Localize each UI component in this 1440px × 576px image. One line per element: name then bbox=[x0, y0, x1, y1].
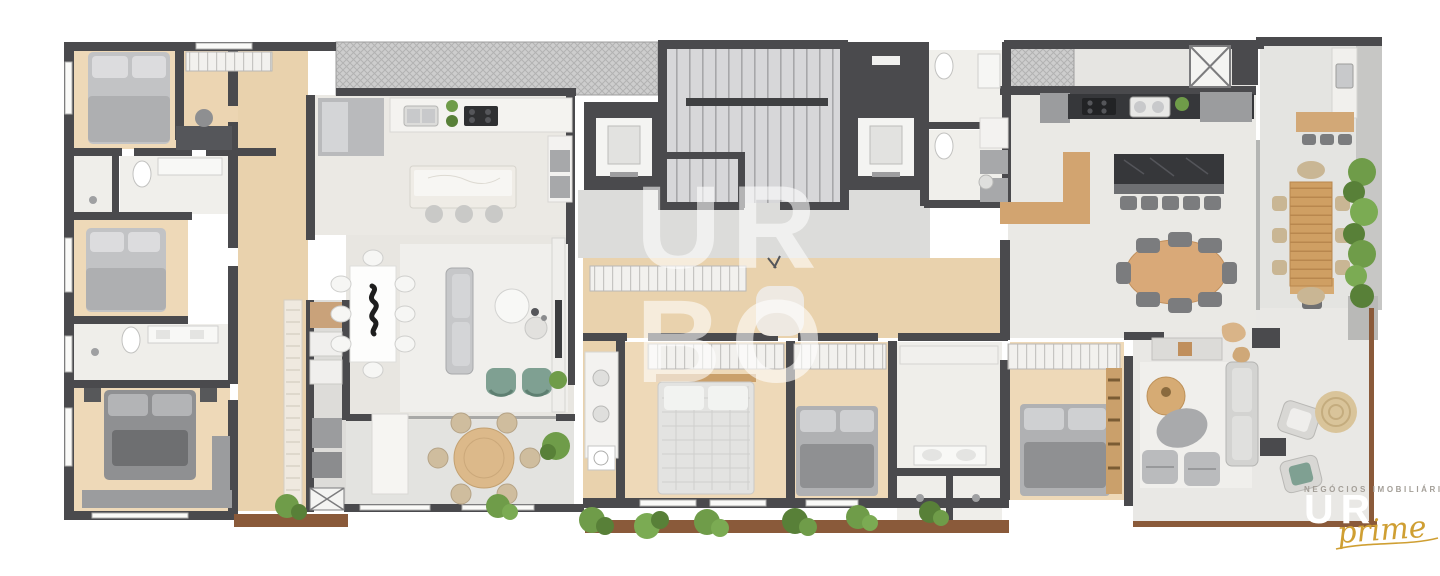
watermark-line-2: BO bbox=[636, 276, 833, 408]
sofa-a-cushion-1 bbox=[452, 274, 470, 318]
lavabo-2-sink bbox=[979, 175, 993, 189]
dining-chair-a2 bbox=[331, 306, 351, 322]
service-shaft-slot bbox=[872, 56, 900, 65]
laundry-sink-1 bbox=[593, 370, 609, 386]
brand-logo: NEGÓCIOS IMOBILIÁRIOS URBO prime bbox=[1304, 485, 1440, 551]
vanity-2-sink-a bbox=[156, 330, 170, 339]
bed-b3-pillow-right bbox=[1068, 408, 1106, 430]
bed-2-pillow-right bbox=[128, 232, 160, 252]
bar-stool-2 bbox=[1320, 134, 1334, 145]
shower-drain-3 bbox=[916, 494, 924, 502]
wall-bath3-bedb3 bbox=[1000, 360, 1010, 500]
utility-box-1 bbox=[312, 418, 342, 448]
bench-cushion-2 bbox=[550, 176, 570, 198]
dining-chair-a3 bbox=[331, 336, 351, 352]
bath-3-sink-a bbox=[922, 449, 942, 461]
sink-b-bowl-1 bbox=[1134, 101, 1146, 113]
dining-chair-a8 bbox=[363, 362, 383, 378]
floor-plan-page: UR BO NEGÓCIOS IMOBILIÁRIOS URBO prime bbox=[0, 0, 1440, 576]
oval-chair-6 bbox=[1198, 292, 1222, 307]
island-stool-3 bbox=[485, 205, 503, 223]
window-west-4 bbox=[65, 408, 72, 466]
hatch-zone-left bbox=[336, 42, 658, 95]
long-table-chair-head bbox=[1297, 161, 1325, 179]
shaft-dark-box bbox=[1232, 49, 1258, 85]
long-table-chair-foot bbox=[1297, 287, 1325, 305]
island-b-stool-2 bbox=[1141, 196, 1158, 210]
hatch-zone-right bbox=[1008, 42, 1074, 89]
logo-script: prime bbox=[1336, 510, 1428, 551]
terrace-long-table bbox=[1290, 182, 1332, 286]
window-terrace-a-1 bbox=[360, 505, 430, 510]
bathroom-1-shower-floor bbox=[74, 156, 114, 214]
counter-l-vertical bbox=[1063, 152, 1090, 224]
terrace-chair-1 bbox=[520, 448, 540, 468]
elevator-right-door bbox=[872, 172, 900, 177]
sink-bowl-a bbox=[407, 109, 420, 123]
wall-bath3-cells bbox=[890, 468, 1004, 476]
window-west-3 bbox=[65, 336, 72, 372]
bath-3-niche bbox=[900, 346, 998, 364]
vanity-1 bbox=[158, 158, 222, 175]
utility-box-2 bbox=[312, 452, 342, 478]
master-blanket bbox=[112, 430, 188, 466]
runner-rug bbox=[284, 300, 302, 508]
bed-4-pillow-right bbox=[840, 410, 874, 432]
cooktop-a bbox=[464, 106, 498, 126]
oval-chair-1 bbox=[1136, 238, 1160, 253]
floor-plan-canvas: UR BO NEGÓCIOS IMOBILIÁRIOS URBO prime bbox=[0, 0, 1440, 576]
wall-bed4-bath3 bbox=[888, 341, 897, 500]
entry-lounge-chair bbox=[980, 118, 1008, 148]
desk-1 bbox=[176, 126, 232, 150]
bed-b3-pillow-left bbox=[1024, 408, 1064, 430]
wall-north-terrace bbox=[1256, 37, 1382, 46]
bed-b3-blanket bbox=[1024, 442, 1106, 488]
elevator-left-door bbox=[610, 172, 638, 177]
wall-bath2-master bbox=[64, 380, 230, 388]
bedroom-b3-wardrobe bbox=[1008, 344, 1120, 369]
wall-north-stair bbox=[658, 40, 848, 49]
wall-corr-bed3-a bbox=[583, 333, 627, 341]
sofa-a-cushion-2 bbox=[452, 322, 470, 366]
sink-bowl-b bbox=[422, 109, 435, 123]
glass-door-post-1 bbox=[1252, 328, 1280, 348]
dining-chair-a6 bbox=[395, 336, 415, 352]
glass-living-terrace-a bbox=[396, 416, 560, 419]
laundry-sink-2 bbox=[593, 406, 609, 422]
oval-chair-8 bbox=[1222, 262, 1237, 284]
window-bed4 bbox=[806, 500, 858, 506]
dining-chair-a7 bbox=[363, 250, 383, 266]
wall-bath1-bed2 bbox=[64, 212, 192, 220]
wall-bedb3-living bbox=[1124, 356, 1133, 506]
bed-1-blanket bbox=[88, 96, 170, 142]
kitchen-plant-1 bbox=[446, 100, 458, 112]
lavabo-1-vanity bbox=[978, 54, 1000, 88]
wall-bed1-closet bbox=[175, 42, 184, 140]
kitchen-b-plant bbox=[1175, 97, 1189, 111]
nightstand-left bbox=[84, 388, 101, 402]
tv-panel-a bbox=[555, 300, 562, 358]
nightstand-right bbox=[200, 388, 217, 402]
window-west-1 bbox=[65, 62, 72, 114]
island-stool-2 bbox=[455, 205, 473, 223]
master-pillow-right bbox=[152, 394, 192, 416]
fridge-door bbox=[322, 102, 348, 152]
wall-bed1-bath-a bbox=[64, 148, 122, 156]
cooktop-b bbox=[1082, 98, 1116, 115]
wall-corridor-a-3 bbox=[228, 266, 238, 384]
stair-handrail bbox=[686, 98, 828, 106]
toilet-2 bbox=[122, 327, 140, 353]
bar-stool-1 bbox=[1302, 134, 1316, 145]
lavabo-1-toilet bbox=[935, 53, 953, 79]
wall-corr-bath3 bbox=[898, 333, 1008, 341]
dining-chair-a5 bbox=[395, 306, 415, 322]
bench-cushion-1 bbox=[550, 150, 570, 172]
bar-stool-3 bbox=[1338, 134, 1352, 145]
kitchen-plant-2 bbox=[446, 115, 458, 127]
oval-chair-4 bbox=[1136, 292, 1160, 307]
bed-2-pillow-left bbox=[90, 232, 124, 252]
oval-chair-5 bbox=[1168, 298, 1192, 313]
wardrobe-closet-1 bbox=[186, 52, 272, 71]
window-bed3b bbox=[710, 500, 766, 506]
entry-cushion-1 bbox=[980, 150, 1008, 174]
dining-chair-a1 bbox=[331, 276, 351, 292]
corridor-a bbox=[284, 300, 302, 508]
elevator-left-inner bbox=[608, 126, 640, 164]
island-a-marble-top bbox=[414, 170, 512, 196]
wall-living-terrace-a2 bbox=[556, 414, 575, 421]
dining-chair-a4 bbox=[395, 276, 415, 292]
wall-kitchen-a-west bbox=[306, 95, 315, 240]
master-pillow-left bbox=[108, 394, 148, 416]
window-north-closet bbox=[196, 43, 252, 49]
terrace-chair-3 bbox=[451, 484, 471, 504]
wall-bed2-bath2 bbox=[64, 316, 188, 324]
bed-4-pillow-left bbox=[800, 410, 836, 432]
coffee-table-a1 bbox=[495, 289, 529, 323]
terrace-b-bar bbox=[1296, 112, 1354, 132]
sink-b-bowl-2 bbox=[1152, 101, 1164, 113]
bedroom-2 bbox=[86, 228, 166, 312]
wall-bath1-divider bbox=[112, 156, 119, 214]
sofa-b-cushion-1 bbox=[1232, 368, 1252, 412]
coffee-table-b-decor bbox=[1161, 387, 1171, 397]
terrace-b-sink bbox=[1336, 64, 1353, 88]
window-west-2 bbox=[65, 238, 72, 292]
kitchen-b-cabinet-l bbox=[1040, 93, 1070, 123]
toilet-1 bbox=[133, 161, 151, 187]
vanity-2-sink-b bbox=[190, 330, 204, 339]
bookshelf-b3 bbox=[1106, 368, 1122, 494]
bed-2-blanket bbox=[86, 268, 166, 310]
terrace-round-table bbox=[454, 428, 514, 488]
washing-machine bbox=[588, 446, 615, 470]
kitchen-b-cabinet-r bbox=[1200, 92, 1252, 122]
watermark-line-1: UR bbox=[636, 162, 826, 294]
tv-console-decor bbox=[1178, 342, 1192, 356]
island-b-shelf bbox=[1114, 184, 1224, 194]
long-table-chair-l3 bbox=[1272, 260, 1287, 275]
long-table-chair-l2 bbox=[1272, 228, 1287, 243]
glass-door-post-2 bbox=[1260, 438, 1286, 456]
service-shaft-dark bbox=[846, 42, 926, 104]
wc-drain bbox=[972, 494, 980, 502]
island-b-stool-1 bbox=[1120, 196, 1137, 210]
wall-stair-vestibule bbox=[662, 152, 742, 159]
terrace-chair-5 bbox=[451, 413, 471, 433]
master-low-cabinet bbox=[82, 490, 232, 508]
watermark: UR BO bbox=[636, 162, 833, 408]
elevator-right-inner bbox=[870, 126, 902, 164]
window-south-master bbox=[92, 513, 188, 518]
island-stool-1 bbox=[425, 205, 443, 223]
desk-1-chair bbox=[195, 109, 213, 127]
oval-chair-7 bbox=[1116, 262, 1131, 284]
sofa-b-cushion-2 bbox=[1232, 416, 1252, 460]
terrace-chair-4 bbox=[428, 448, 448, 468]
shower-drain-1 bbox=[89, 196, 97, 204]
shower-drain-2 bbox=[91, 348, 99, 356]
oval-chair-3 bbox=[1198, 238, 1222, 253]
wall-kitchen-b-west bbox=[1000, 240, 1010, 340]
bedroom-b3 bbox=[1008, 344, 1122, 496]
bed-1-pillow-left bbox=[92, 56, 128, 78]
bed-4-blanket bbox=[800, 444, 874, 488]
island-b-top bbox=[1114, 154, 1224, 184]
shelf-plant bbox=[549, 371, 567, 389]
dryer bbox=[310, 360, 342, 384]
lavabo-2-toilet bbox=[935, 133, 953, 159]
oval-chair-2 bbox=[1168, 232, 1192, 247]
terrace-a-console bbox=[372, 414, 408, 494]
laundry-counter bbox=[585, 352, 618, 458]
long-table-chair-l1 bbox=[1272, 196, 1287, 211]
laundry-corridor-b bbox=[585, 352, 618, 470]
island-b-stool-3 bbox=[1162, 196, 1179, 210]
island-b-stool-4 bbox=[1183, 196, 1200, 210]
glass-wall-terrace-b bbox=[1256, 140, 1260, 310]
master-side-cabinet bbox=[212, 436, 230, 508]
window-bed3 bbox=[640, 500, 696, 506]
bath-3-sink-b bbox=[956, 449, 976, 461]
terrace-a-plant-leaf bbox=[540, 444, 556, 460]
terrace-chair-6 bbox=[497, 413, 517, 433]
wall-kitchen-a-north bbox=[336, 88, 576, 96]
island-b-stool-5 bbox=[1204, 196, 1221, 210]
bed-1-pillow-right bbox=[132, 56, 166, 78]
